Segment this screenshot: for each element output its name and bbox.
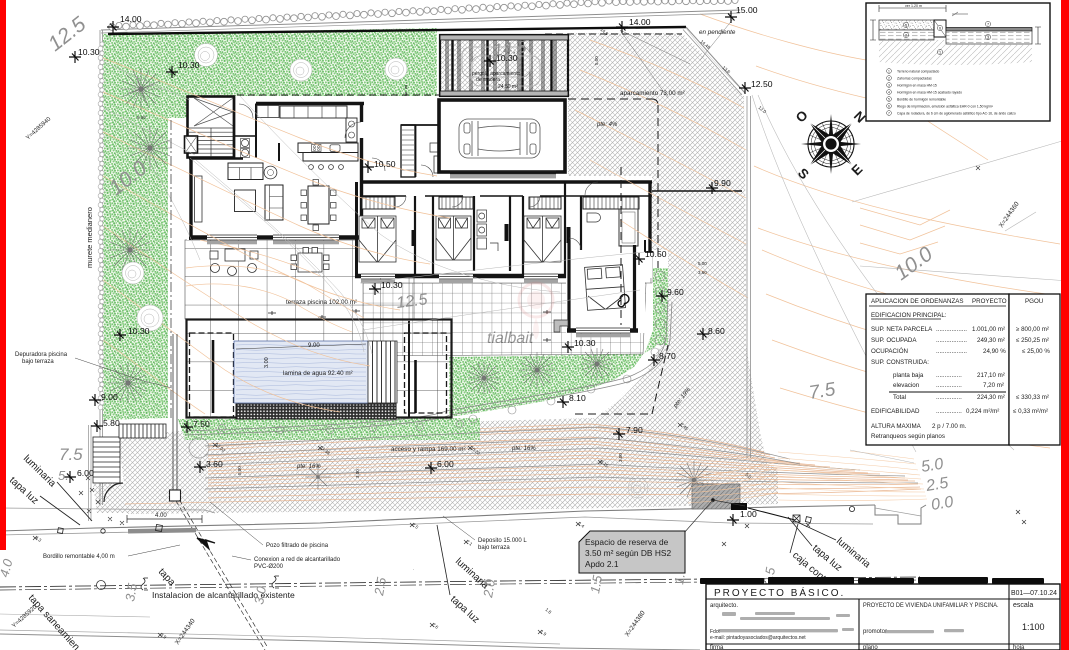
svg-text:8.70: 8.70 xyxy=(659,351,676,361)
svg-text:PGOU: PGOU xyxy=(1025,298,1043,305)
svg-text:Riego de imprimación, emulsión: Riego de imprimación, emulsión asfáltica… xyxy=(897,105,994,109)
svg-text:≤ 250,25 m²: ≤ 250,25 m² xyxy=(1016,337,1049,344)
svg-text:PROYECTO: PROYECTO xyxy=(972,298,1007,305)
svg-text:2 p / 7.00 m.: 2 p / 7.00 m. xyxy=(932,423,967,430)
svg-text:7.5: 7.5 xyxy=(59,445,83,464)
svg-text:≤ 25,00 %: ≤ 25,00 % xyxy=(1022,348,1050,355)
svg-text:EDIFICACION PRINCIPAL:: EDIFICACION PRINCIPAL: xyxy=(871,312,947,319)
svg-text:10.50: 10.50 xyxy=(645,249,667,259)
svg-text:..................: .................. xyxy=(936,337,967,344)
svg-text:...............: ............... xyxy=(936,408,962,415)
svg-text:5.0: 5.0 xyxy=(920,456,945,476)
svg-text:tialbait: tialbait xyxy=(487,330,534,347)
svg-text:1:100: 1:100 xyxy=(1022,622,1045,632)
svg-text:Hormigón en masa HM-15 acabado: Hormigón en masa HM-15 acabado rayado xyxy=(897,91,962,95)
svg-text:pte: 16%: pte: 16% xyxy=(296,464,321,470)
svg-text:...............: ............... xyxy=(936,394,962,401)
svg-text:Capa de rodadura, de 6 cm de a: Capa de rodadura, de 6 cm de aglomerado … xyxy=(897,112,1016,116)
svg-text:24,50 m²: 24,50 m² xyxy=(498,84,518,90)
svg-text:ALTURA MAXIMA: ALTURA MAXIMA xyxy=(871,423,922,430)
svg-text:3: 3 xyxy=(987,35,989,39)
svg-text:Apdo 2.1: Apdo 2.1 xyxy=(585,559,619,569)
svg-text:SUP. CONSTRUIDA:: SUP. CONSTRUIDA: xyxy=(871,359,929,366)
svg-text:aparcamiento 73,00 m²: aparcamiento 73,00 m² xyxy=(620,90,685,97)
svg-text:PROYECTO BÁSICO.: PROYECTO BÁSICO. xyxy=(714,586,845,599)
svg-text:3: 3 xyxy=(888,83,890,87)
svg-text:12.50: 12.50 xyxy=(751,79,773,89)
svg-text:10.30: 10.30 xyxy=(128,326,150,336)
svg-text:1: 1 xyxy=(939,50,941,54)
svg-text:promotor: promotor xyxy=(863,629,887,635)
svg-text:elevacion: elevacion xyxy=(893,382,920,389)
svg-text:acceso y rampa 169,00 m²: acceso y rampa 169,00 m² xyxy=(391,446,466,453)
svg-text:2: 2 xyxy=(905,33,907,37)
svg-text:Bordillo remontable 4,00 m: Bordillo remontable 4,00 m xyxy=(43,554,115,560)
svg-text:Zahorras compactadas: Zahorras compactadas xyxy=(897,77,932,81)
svg-text:217,10 m²: 217,10 m² xyxy=(977,372,1005,379)
svg-text:9.90: 9.90 xyxy=(714,178,731,188)
svg-text:≤ 0,33 m²/m²: ≤ 0,33 m²/m² xyxy=(1013,408,1048,415)
svg-text:bajo terraza: bajo terraza xyxy=(22,359,54,365)
svg-text:6.00: 6.00 xyxy=(77,468,94,478)
svg-text:PVC-Ø200: PVC-Ø200 xyxy=(254,564,284,570)
svg-text:planta baja: planta baja xyxy=(893,372,924,379)
svg-text:de madera: de madera xyxy=(476,77,500,83)
svg-text:3.60: 3.60 xyxy=(206,459,223,469)
svg-text:2: 2 xyxy=(888,76,890,80)
svg-text:Fdo:: Fdo: xyxy=(710,629,720,635)
svg-text:224,30 m²: 224,30 m² xyxy=(977,394,1005,401)
svg-text:e-mail: pintadoyasociados@arqu: e-mail: pintadoyasociados@arquitectos.ne… xyxy=(710,635,806,641)
svg-text:pte: 16%: pte: 16% xyxy=(511,446,536,452)
svg-text:0.0: 0.0 xyxy=(930,494,955,514)
svg-text:3,00: 3,00 xyxy=(618,453,623,462)
svg-text:15.00: 15.00 xyxy=(736,5,758,15)
svg-text:3,00: 3,00 xyxy=(355,469,360,478)
svg-text:Conexion a red de alcantarilla: Conexion a red de alcantarillado xyxy=(254,557,341,563)
svg-text:9.00: 9.00 xyxy=(308,343,320,349)
svg-text:6.00: 6.00 xyxy=(437,459,454,469)
svg-text:SUP. OCUPADA: SUP. OCUPADA xyxy=(871,337,917,344)
svg-text:1.00: 1.00 xyxy=(740,509,757,519)
svg-text:Retranqueos según planos: Retranqueos según planos xyxy=(871,433,945,440)
svg-text:5.00: 5.00 xyxy=(594,56,599,65)
svg-text:24,90 %: 24,90 % xyxy=(983,348,1006,355)
svg-text:14.00: 14.00 xyxy=(120,14,142,24)
svg-text:arquitecto.: arquitecto. xyxy=(710,603,738,609)
svg-text:5.: 5. xyxy=(58,468,69,483)
svg-text:hoja: hoja xyxy=(1013,645,1025,650)
svg-text:...............: ............... xyxy=(936,382,962,389)
svg-text:8.60: 8.60 xyxy=(708,326,725,336)
svg-text:3.00: 3.00 xyxy=(264,357,270,368)
svg-text:Total: Total xyxy=(893,394,906,401)
svg-text:≥ 800,00 m²: ≥ 800,00 m² xyxy=(1016,326,1049,333)
svg-text:...............: ............... xyxy=(936,372,962,379)
svg-text:5: 5 xyxy=(905,23,907,27)
svg-text:10.30: 10.30 xyxy=(178,60,200,70)
svg-text:B01—07.10.24: B01—07.10.24 xyxy=(1011,590,1057,597)
svg-text:7.50: 7.50 xyxy=(193,419,210,429)
svg-text:lamina de agua 92.40 m²: lamina de agua 92.40 m² xyxy=(283,370,353,377)
svg-text:Bordillo de hormigón remontabl: Bordillo de hormigón remontable xyxy=(897,98,946,102)
svg-text:249,30 m²: 249,30 m² xyxy=(977,337,1005,344)
svg-text:10.30: 10.30 xyxy=(78,47,100,57)
svg-text:Terreno natural compactado: Terreno natural compactado xyxy=(897,70,939,74)
svg-text:Instalacion de alcantarillado: Instalacion de alcantarillado existente xyxy=(152,590,295,600)
svg-text:5.80: 5.80 xyxy=(103,418,120,428)
svg-text:murete medianero: murete medianero xyxy=(85,207,94,268)
svg-text:7,20 m²: 7,20 m² xyxy=(983,382,1004,389)
svg-text:pte: 4%: pte: 4% xyxy=(596,122,618,128)
svg-text:bajo terraza: bajo terraza xyxy=(478,545,510,551)
svg-text:9.60: 9.60 xyxy=(667,287,684,297)
svg-text:5.00: 5.00 xyxy=(137,115,146,120)
svg-text:10.30: 10.30 xyxy=(381,280,403,290)
svg-text:ver 1.20 m: ver 1.20 m xyxy=(905,4,922,8)
svg-text:14.00: 14.00 xyxy=(629,17,651,27)
svg-text:firma: firma xyxy=(710,645,724,650)
svg-text:4: 4 xyxy=(888,90,890,94)
svg-text:PROYECTO DE VIVIENDA UNIFAM: PROYECTO DE VIVIENDA UNIFAMILIAR Y PISCI… xyxy=(863,603,999,609)
svg-text:5,00: 5,00 xyxy=(237,466,242,475)
svg-text:10.50: 10.50 xyxy=(374,159,396,169)
svg-text:..................: .................. xyxy=(936,348,967,355)
svg-text:SUP. NETA PARCELA: SUP. NETA PARCELA xyxy=(871,326,933,333)
svg-text:6: 6 xyxy=(939,26,941,30)
svg-text:Depuradora piscina: Depuradora piscina xyxy=(15,352,68,358)
svg-text:Hormigón en masa HM-15: Hormigón en masa HM-15 xyxy=(897,84,937,88)
svg-text:7: 7 xyxy=(888,111,890,115)
svg-text:2.5: 2.5 xyxy=(924,475,950,495)
svg-text:5: 5 xyxy=(888,97,890,101)
svg-text:plano: plano xyxy=(863,645,878,650)
svg-text:0,224 m²/m²: 0,224 m²/m² xyxy=(966,408,999,415)
svg-text:7: 7 xyxy=(987,22,989,26)
svg-text:Deposito 15.000 L: Deposito 15.000 L xyxy=(478,538,527,544)
svg-text:≤ 330,33 m²: ≤ 330,33 m² xyxy=(1016,394,1049,401)
svg-text:Pozo filtrado de piscina: Pozo filtrado de piscina xyxy=(266,543,329,549)
svg-text:8.10: 8.10 xyxy=(569,393,586,403)
svg-text:7.5: 7.5 xyxy=(807,379,837,404)
svg-text:9.00: 9.00 xyxy=(101,392,118,402)
svg-text:OCUPACIÓN: OCUPACIÓN xyxy=(871,348,908,355)
svg-text:5,00: 5,00 xyxy=(698,261,707,266)
svg-text:3.50 m² según DB HS2: 3.50 m² según DB HS2 xyxy=(585,548,671,558)
svg-text:EDIFICABILIDAD: EDIFICABILIDAD xyxy=(871,408,920,415)
svg-text:10.30: 10.30 xyxy=(574,338,596,348)
svg-text:..................: .................. xyxy=(936,326,967,333)
svg-text:APLICACION DE ORDENANZAS: APLICACION DE ORDENANZAS xyxy=(871,298,964,305)
svg-text:3,60: 3,60 xyxy=(698,270,707,275)
svg-text:Espacio de reserva de: Espacio de reserva de xyxy=(585,537,669,547)
svg-text:4.00: 4.00 xyxy=(155,513,167,519)
svg-text:1.001,00 m²: 1.001,00 m² xyxy=(972,326,1005,333)
svg-text:en pendiente: en pendiente xyxy=(699,29,736,36)
svg-text:7.90: 7.90 xyxy=(626,425,643,435)
svg-text:14.5: 14.5 xyxy=(492,37,528,60)
svg-text:6: 6 xyxy=(888,104,890,108)
svg-text:1: 1 xyxy=(888,69,890,73)
svg-text:escala: escala xyxy=(1013,602,1033,609)
